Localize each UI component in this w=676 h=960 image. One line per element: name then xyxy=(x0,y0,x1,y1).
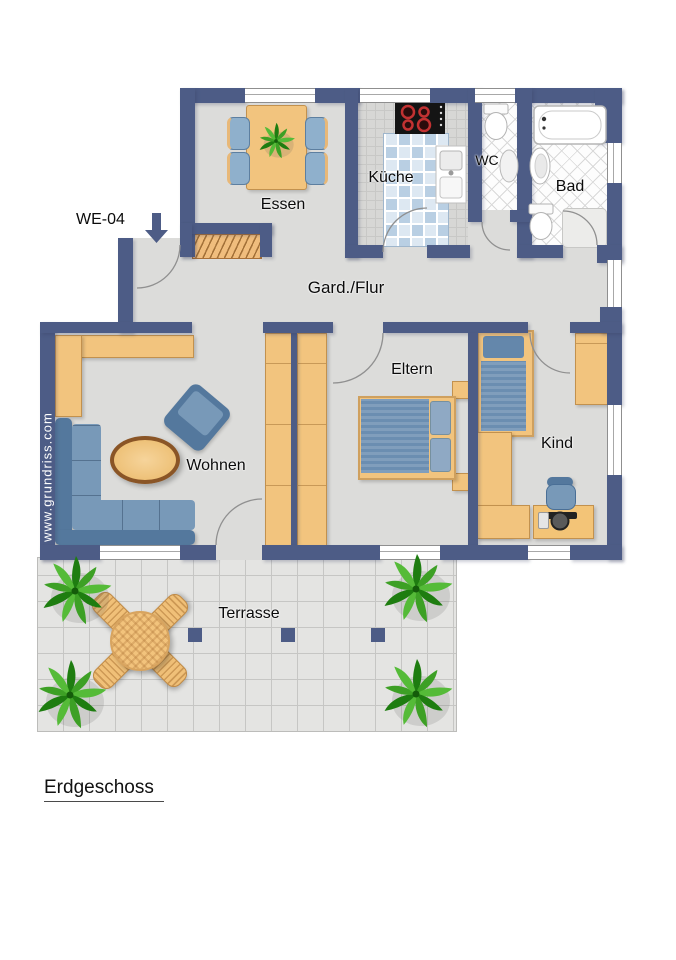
wall-segment xyxy=(118,238,133,333)
window xyxy=(475,88,515,103)
window xyxy=(380,545,440,560)
wall-segment xyxy=(345,245,383,258)
pillar xyxy=(188,628,202,642)
watermark: www.grundriss.com xyxy=(40,412,55,542)
dining-chair xyxy=(305,152,328,185)
dining-table xyxy=(246,105,307,190)
wall-segment xyxy=(510,210,532,222)
sideboard xyxy=(192,234,262,259)
wall-segment xyxy=(517,88,532,258)
wall-segment xyxy=(570,322,622,333)
terrace-door-floor xyxy=(216,545,262,560)
wall-segment xyxy=(180,545,216,560)
wall-segment xyxy=(262,545,380,560)
sofa-cushions xyxy=(86,500,195,530)
wall-segment xyxy=(40,322,192,333)
window xyxy=(528,545,570,560)
wall-segment xyxy=(260,223,272,257)
door-gap-floor xyxy=(528,322,570,333)
pillar xyxy=(371,628,385,642)
wall-segment xyxy=(570,545,622,560)
window xyxy=(607,260,622,307)
sofa xyxy=(55,418,72,545)
office-chair-seat xyxy=(546,484,576,510)
dining-chair xyxy=(305,117,328,150)
wall-segment xyxy=(345,88,358,258)
room-label-living: Wohnen xyxy=(186,457,245,475)
floor-label: Erdgeschoss xyxy=(44,777,164,802)
room-label-kitchen: Küche xyxy=(368,169,413,187)
wardrobe-child xyxy=(575,333,609,405)
door-gap-floor xyxy=(333,322,383,333)
terrace-table xyxy=(110,611,170,671)
pillar xyxy=(281,628,295,642)
pillow xyxy=(430,438,451,472)
wall-segment xyxy=(291,333,297,545)
pillow xyxy=(430,401,451,435)
door-gap-floor xyxy=(482,210,510,222)
wall-segment xyxy=(383,322,528,333)
wall-segment xyxy=(607,333,622,405)
wall-segment xyxy=(595,88,622,143)
room-label-child: Kind xyxy=(541,435,573,453)
room-label-parents: Eltern xyxy=(391,361,433,379)
dining-chair xyxy=(227,152,250,185)
wall-segment xyxy=(427,245,470,258)
bed-child xyxy=(477,330,534,437)
kitchen-island xyxy=(383,133,449,247)
shower-tray xyxy=(562,208,607,248)
door-gap-floor xyxy=(192,322,263,333)
duvet xyxy=(361,399,429,473)
wall-segment xyxy=(180,223,272,234)
room-label-hall: Gard./Flur xyxy=(308,278,385,298)
wall-segment xyxy=(263,322,333,333)
room-label-terrace: Terrasse xyxy=(218,605,279,623)
wall-segment xyxy=(440,545,528,560)
pillow xyxy=(483,336,524,358)
sofa xyxy=(55,530,195,545)
terrace-area xyxy=(37,557,457,732)
phone xyxy=(538,512,549,529)
desk xyxy=(533,505,594,539)
room-label-wc: WC xyxy=(475,152,498,168)
mattress xyxy=(481,361,526,431)
room-label-dining: Essen xyxy=(261,196,305,214)
dining-chair xyxy=(227,117,250,150)
room-label-bath: Bad xyxy=(556,178,584,196)
wall-segment xyxy=(40,545,100,560)
wall-segment xyxy=(468,333,478,545)
wardrobe xyxy=(297,333,327,547)
floor-plan: Essen Küche WC Bad Gard./Flur Wohnen Elt… xyxy=(0,0,676,960)
window xyxy=(607,143,622,183)
shelf-child xyxy=(477,505,530,539)
bed-parents xyxy=(358,396,456,480)
wall-segment xyxy=(517,245,563,258)
living-shelf xyxy=(55,335,82,417)
wall-segment xyxy=(180,223,192,257)
coffee-table xyxy=(110,436,180,484)
keyboard xyxy=(547,512,577,519)
window xyxy=(360,88,430,103)
unit-label: WE-04 xyxy=(76,211,125,229)
window xyxy=(245,88,315,103)
wardrobe xyxy=(265,333,293,547)
window xyxy=(100,545,180,560)
window xyxy=(607,405,622,475)
